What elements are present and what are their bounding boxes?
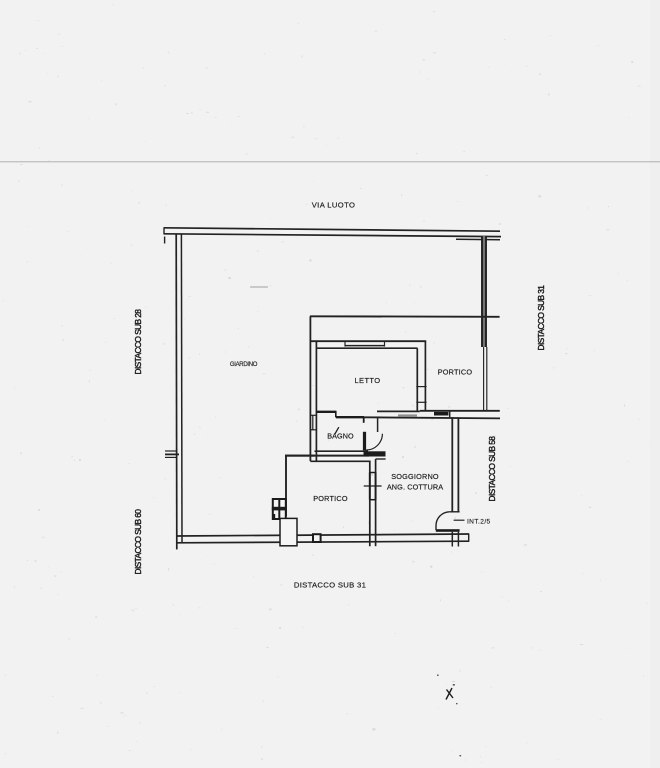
svg-text:BAGNO: BAGNO — [327, 432, 354, 441]
svg-text:VIA LUOTO: VIA LUOTO — [312, 201, 356, 210]
svg-text:INT.2/5: INT.2/5 — [467, 518, 491, 525]
svg-text:DISTACCO SUB 60: DISTACCO SUB 60 — [133, 509, 143, 575]
svg-text:GIARDINO: GIARDINO — [230, 362, 258, 368]
svg-text:SOGGIORNO: SOGGIORNO — [391, 472, 439, 481]
svg-text:DISTACCO SUB 28: DISTACCO SUB 28 — [133, 309, 143, 375]
svg-text:DISTACCO SUB 58: DISTACCO SUB 58 — [487, 436, 497, 502]
svg-text:ANG. COTTURA: ANG. COTTURA — [387, 483, 443, 492]
svg-text:DISTACCO SUB 31: DISTACCO SUB 31 — [294, 580, 366, 589]
svg-text:PORTICO: PORTICO — [313, 494, 348, 503]
svg-text:LETTO: LETTO — [354, 376, 380, 385]
svg-text:DISTACCO SUB 31: DISTACCO SUB 31 — [536, 285, 546, 351]
svg-text:PORTICO: PORTICO — [438, 368, 473, 377]
